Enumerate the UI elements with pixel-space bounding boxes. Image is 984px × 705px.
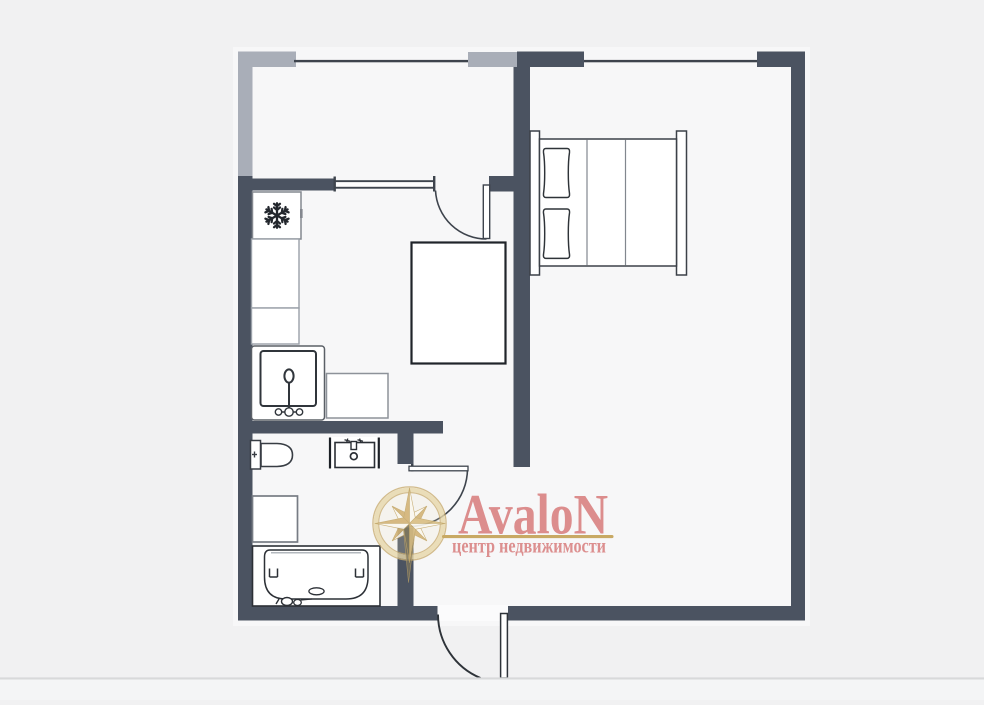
svg-text:центр недвижимости: центр недвижимости: [452, 537, 606, 558]
